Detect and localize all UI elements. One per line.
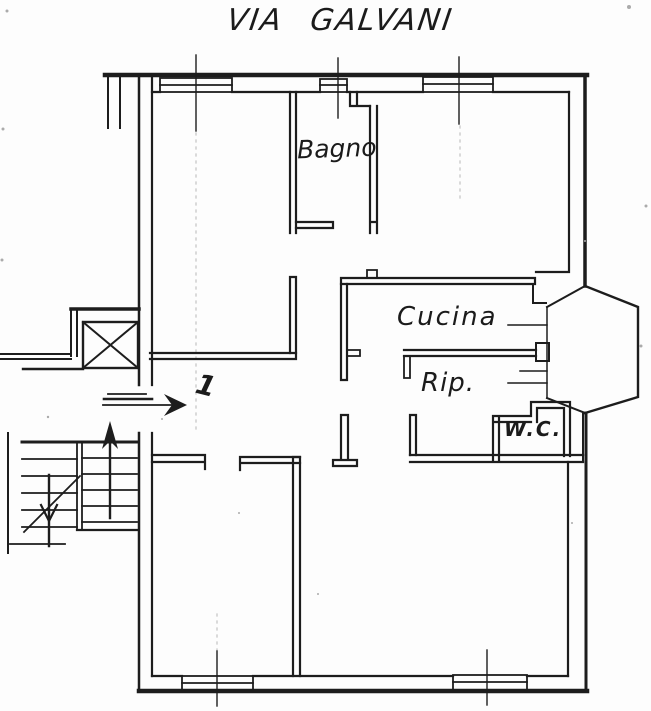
street-title: VIA GALVANI <box>158 6 522 36</box>
stairs-break-line <box>24 476 80 532</box>
staircase <box>8 421 137 553</box>
floor-plan-drawing <box>0 0 651 711</box>
room-label-cucina: Cucina <box>397 304 498 330</box>
room-label-wc: W.C. <box>504 419 562 439</box>
room-label-bagno: Bagno <box>297 135 377 163</box>
elevator-symbol <box>83 322 138 368</box>
label-pointer-lines <box>508 325 547 383</box>
room-label-rip: Rip. <box>421 370 475 396</box>
entrance-arrow <box>103 394 187 416</box>
balcony-bay <box>547 286 638 413</box>
stairs-down-arrow <box>41 475 57 546</box>
floor-plan-page: VIA GALVANI Bagno Cucina Rip. W.C. 1 <box>0 0 651 711</box>
stairs-up-arrow <box>102 421 118 518</box>
